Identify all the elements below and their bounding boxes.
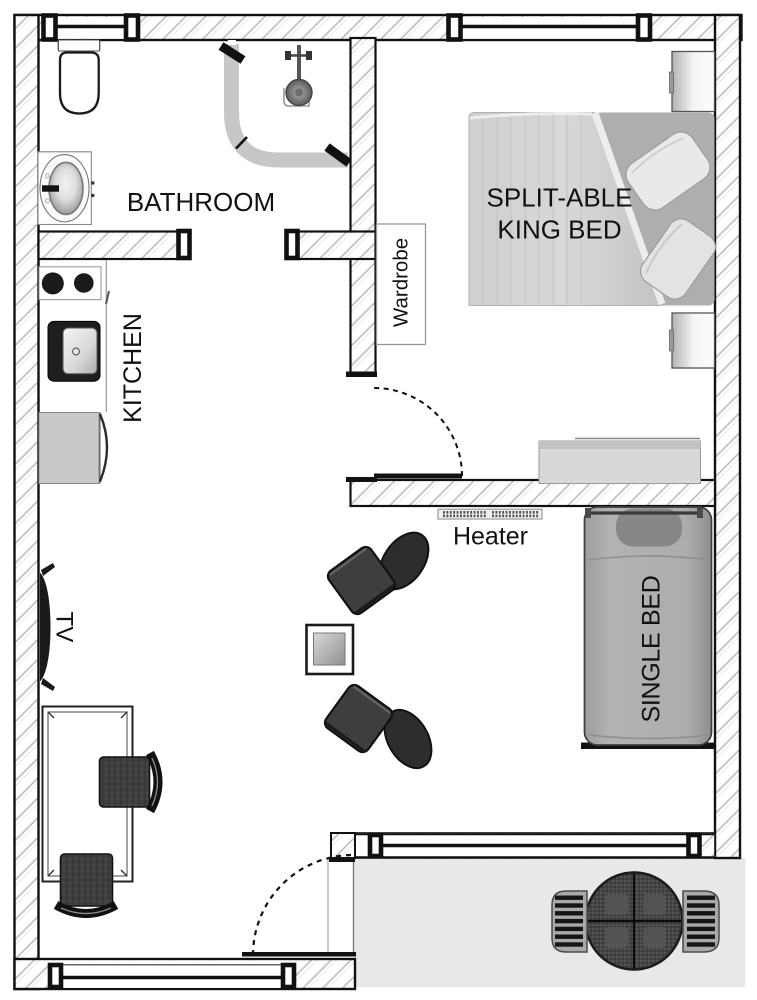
svg-text:Heater: Heater — [453, 523, 528, 551]
svg-text:Wardrobe: Wardrobe — [390, 238, 413, 327]
svg-text:KITCHEN: KITCHEN — [119, 313, 147, 423]
svg-text:KING BED: KING BED — [497, 215, 621, 245]
svg-text:SPLIT-ABLE: SPLIT-ABLE — [487, 183, 633, 213]
svg-text:BATHROOM: BATHROOM — [127, 187, 275, 217]
svg-text:SINGLE BED: SINGLE BED — [638, 575, 666, 722]
svg-text:TV: TV — [51, 612, 78, 643]
